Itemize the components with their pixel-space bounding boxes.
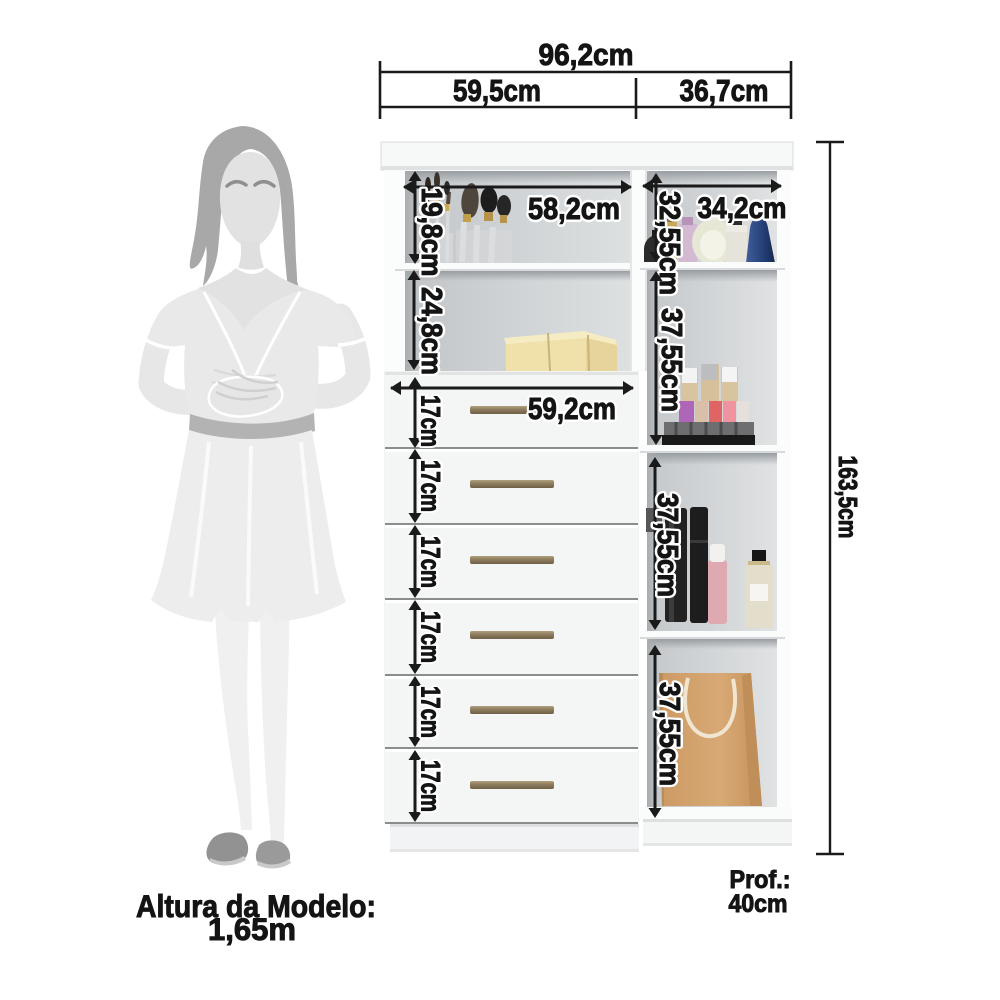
svg-text:34,2cm: 34,2cm <box>698 192 787 225</box>
svg-text:58,2cm: 58,2cm <box>528 191 620 226</box>
svg-text:36,7cm: 36,7cm <box>680 73 769 108</box>
svg-text:1,65m: 1,65m <box>208 911 296 947</box>
svg-text:17cm: 17cm <box>416 611 446 663</box>
svg-text:59,2cm: 59,2cm <box>528 391 616 426</box>
svg-text:40cm: 40cm <box>729 890 788 918</box>
svg-text:17cm: 17cm <box>416 536 446 588</box>
svg-text:17cm: 17cm <box>416 760 446 812</box>
svg-text:17cm: 17cm <box>416 460 446 512</box>
svg-text:19,8cm: 19,8cm <box>415 188 447 277</box>
svg-text:24,8cm: 24,8cm <box>415 287 447 375</box>
svg-text:96,2cm: 96,2cm <box>539 37 634 72</box>
svg-text:37,55cm: 37,55cm <box>653 682 685 786</box>
svg-text:37,55cm: 37,55cm <box>651 493 683 597</box>
svg-text:17cm: 17cm <box>416 686 446 738</box>
svg-text:163,5cm: 163,5cm <box>833 456 863 539</box>
svg-text:17cm: 17cm <box>416 395 446 447</box>
svg-text:59,5cm: 59,5cm <box>453 73 541 108</box>
svg-text:37,55cm: 37,55cm <box>655 308 687 412</box>
